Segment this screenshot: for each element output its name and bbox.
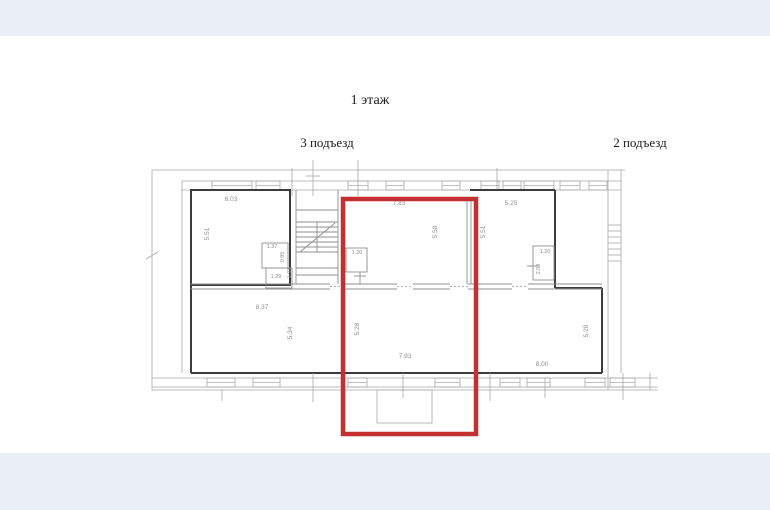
dimension-label: 8.37 xyxy=(256,304,269,311)
dimension-label: 8.00 xyxy=(536,361,549,368)
porch xyxy=(377,390,432,423)
staircase xyxy=(296,190,338,284)
bottom-window-band xyxy=(152,373,658,402)
dimension-label: 2.08 xyxy=(536,264,542,275)
floor-plan: 6.035.517.835.585.255.511.201.202.081.37… xyxy=(0,0,770,510)
floor-plan-page: 1 этаж 3 подъезд 2 подъезд xyxy=(0,0,770,510)
dimension-label: 6.03 xyxy=(225,196,238,203)
dimension-label: 1.98 xyxy=(287,268,293,279)
room-walls xyxy=(191,190,602,373)
dimension-label: 0.95 xyxy=(280,252,286,263)
dimension-label: 1.20 xyxy=(352,250,363,256)
dimension-label: 5.25 xyxy=(505,200,518,207)
dimension-label: 7.93 xyxy=(399,353,412,360)
dimension-label: 5.34 xyxy=(287,326,294,339)
dimension-label: 1.20 xyxy=(540,249,551,255)
dimension-label: 5.28 xyxy=(583,324,590,337)
dimension-label: 5.51 xyxy=(480,225,487,238)
dimension-label: 5.58 xyxy=(432,225,439,238)
second-entrance-stair xyxy=(608,225,621,261)
dimension-labels: 6.035.517.835.585.255.511.201.202.081.37… xyxy=(204,196,590,368)
highlight-rectangle xyxy=(343,199,476,434)
dimension-label: 5.51 xyxy=(204,227,211,240)
dimension-label: 1.29 xyxy=(271,274,282,280)
dimension-label: 5.28 xyxy=(354,322,361,335)
interior-partitions xyxy=(191,199,602,289)
dimension-label: 1.37 xyxy=(267,244,278,250)
